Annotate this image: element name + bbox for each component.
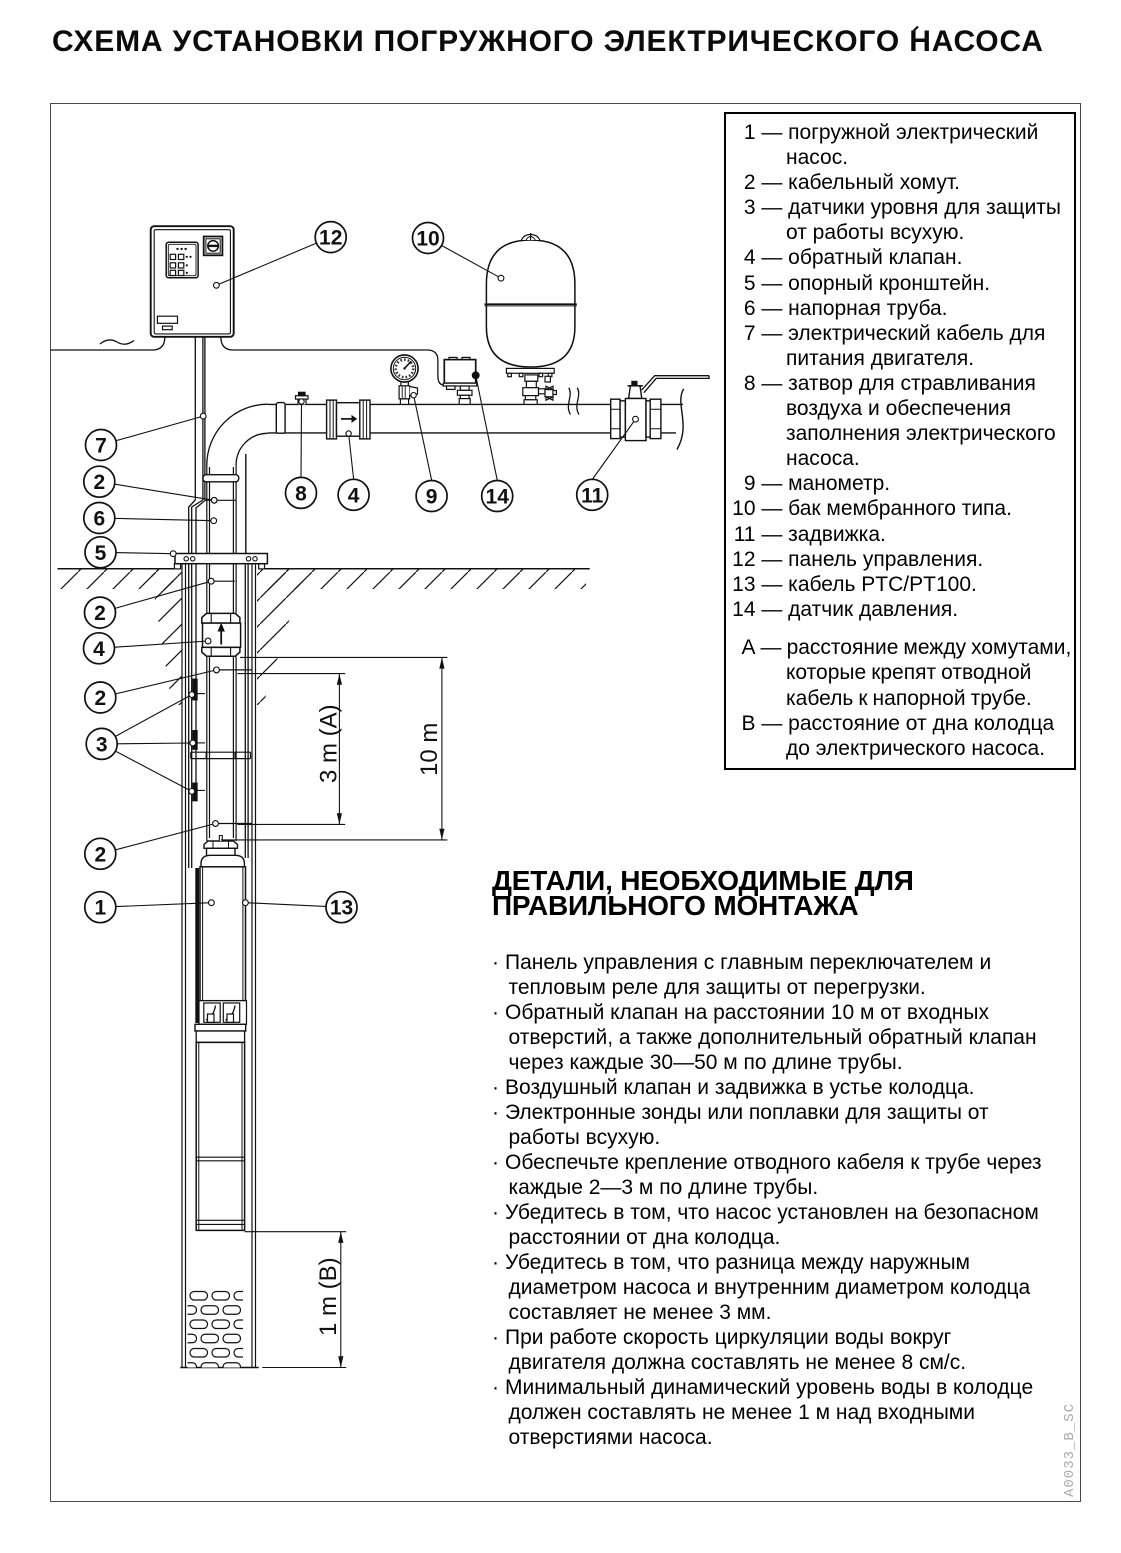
svg-text:1 m (B): 1 m (B) bbox=[315, 1257, 342, 1336]
svg-text:6: 6 bbox=[93, 508, 105, 531]
svg-text:7: 7 bbox=[95, 435, 107, 458]
svg-text:8: 8 bbox=[295, 482, 307, 505]
svg-text:13: 13 bbox=[330, 897, 353, 920]
svg-text:12: 12 bbox=[319, 227, 342, 250]
svg-text:10: 10 bbox=[416, 228, 439, 251]
svg-text:3: 3 bbox=[96, 733, 108, 756]
svg-text:14: 14 bbox=[486, 486, 510, 509]
svg-text:4: 4 bbox=[93, 638, 105, 661]
svg-text:1: 1 bbox=[94, 897, 106, 920]
svg-text:3 m (A): 3 m (A) bbox=[315, 704, 342, 783]
svg-text:2: 2 bbox=[94, 602, 106, 625]
svg-text:9: 9 bbox=[426, 486, 438, 509]
svg-text:2: 2 bbox=[94, 843, 106, 866]
svg-text:2: 2 bbox=[94, 687, 106, 710]
svg-text:4: 4 bbox=[348, 484, 360, 507]
svg-text:2: 2 bbox=[93, 471, 105, 494]
svg-text:10 m: 10 m bbox=[416, 723, 443, 776]
svg-text:11: 11 bbox=[581, 484, 604, 507]
svg-text:5: 5 bbox=[95, 542, 107, 565]
